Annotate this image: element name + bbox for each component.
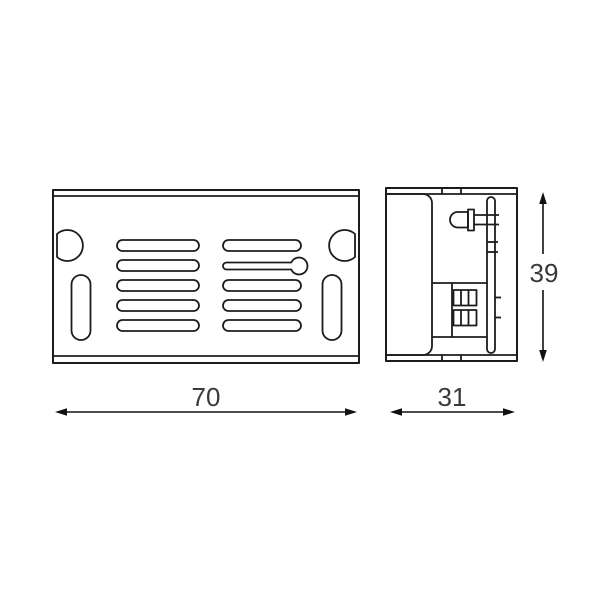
vent-slot <box>117 240 199 251</box>
terminal-cell <box>454 310 477 326</box>
arrowhead-right-icon <box>345 408 357 416</box>
arrowhead-right-icon <box>503 408 515 416</box>
vent-slot <box>223 300 301 311</box>
terminal-cell <box>454 290 477 306</box>
corner-hole-left <box>57 230 83 261</box>
vent-slot <box>223 240 301 251</box>
vent-slot <box>117 320 199 331</box>
dimension-depth: 31 <box>390 382 515 416</box>
dimension-annotations: 70 31 39 <box>55 192 558 416</box>
vent-slot <box>117 280 199 291</box>
dimension-height-label: 39 <box>530 258 559 288</box>
arrowhead-down-icon <box>539 350 547 362</box>
led-dome <box>450 212 468 228</box>
arrowhead-left-icon <box>390 408 402 416</box>
pcb <box>487 197 495 353</box>
vent-slot <box>223 280 301 291</box>
vent-slot <box>117 300 199 311</box>
dimension-width: 70 <box>55 382 357 416</box>
dimension-height: 39 <box>530 192 559 362</box>
technical-drawing-canvas: 70 31 39 <box>0 0 600 600</box>
front-view <box>53 190 359 363</box>
corner-hole-right <box>329 230 355 261</box>
dimension-width-label: 70 <box>192 382 221 412</box>
keyhole-slot <box>223 258 307 275</box>
arrowhead-left-icon <box>55 408 67 416</box>
vent-slot <box>223 320 301 331</box>
mounting-slot-right <box>323 275 342 340</box>
arrowhead-up-icon <box>539 192 547 204</box>
led-flange <box>468 210 474 231</box>
dimension-depth-label: 31 <box>438 382 467 412</box>
side-view <box>386 188 517 361</box>
mounting-slot-left <box>72 275 91 340</box>
front-outline <box>53 190 359 363</box>
vent-slot <box>117 260 199 271</box>
case-profile <box>386 194 432 355</box>
